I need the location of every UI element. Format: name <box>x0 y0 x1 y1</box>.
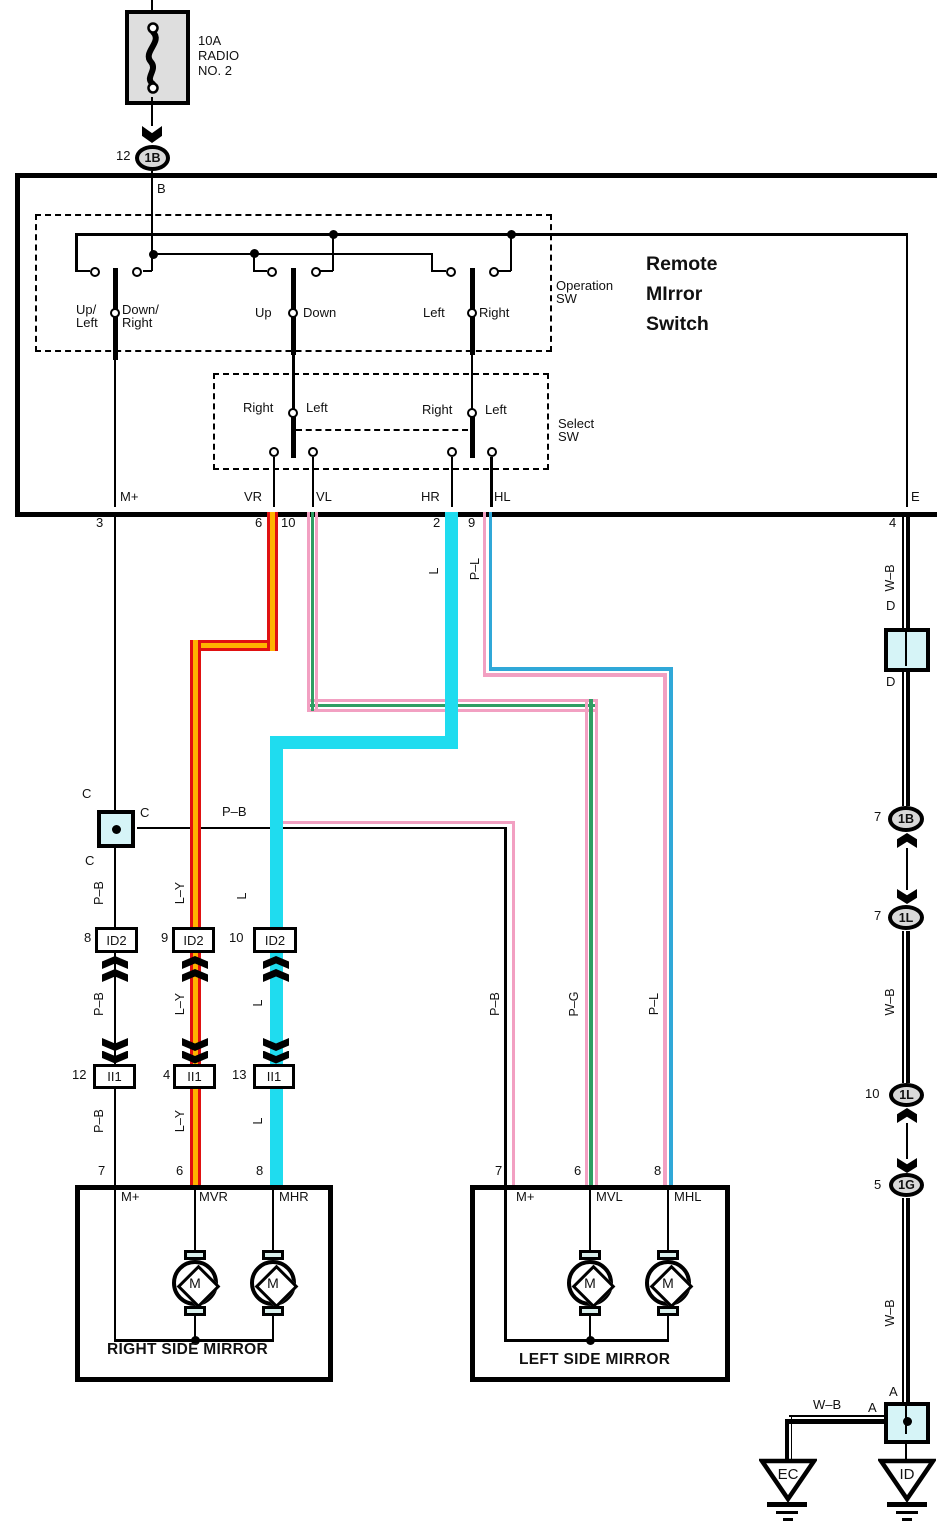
mirror-motor: M <box>172 1260 218 1306</box>
pin-hr: HR <box>421 490 440 504</box>
wire-pl-v1 <box>483 512 487 677</box>
wire-label-pb-branch: P–B <box>222 805 247 819</box>
id2-pin: 10 <box>229 931 243 945</box>
contact <box>489 267 499 277</box>
oval-pin: 10 <box>865 1087 879 1101</box>
fuse-name-2: NO. 2 <box>198 64 232 78</box>
connector-oval-1L: 1L <box>888 905 924 930</box>
pivot <box>288 308 298 318</box>
chain-wire <box>906 848 909 890</box>
fuse-box <box>125 10 190 105</box>
wire-label-l: L <box>251 1118 265 1125</box>
rm-pin-m: M+ <box>121 1190 139 1204</box>
wire-label-l: L <box>251 1000 265 1007</box>
motor-brush <box>579 1250 601 1260</box>
motor-label: M <box>254 1264 292 1302</box>
wire-label-pl-left: P–L <box>647 993 661 1015</box>
m-plus-wire-internal <box>114 360 117 507</box>
connector-ii1: II1 <box>93 1064 136 1089</box>
ground-hatch <box>896 1511 918 1514</box>
op-sw3-right-label: Right <box>479 306 509 320</box>
junction-dot <box>586 1336 595 1345</box>
pin-e-number: 4 <box>889 516 896 530</box>
pivot <box>467 308 477 318</box>
pin-vr: VR <box>244 490 262 504</box>
lm-mhl-stem <box>667 1185 670 1251</box>
op-sw3-left-label: Left <box>423 306 445 320</box>
wire-l-v1 <box>445 512 458 749</box>
wire-pg-v2 <box>585 699 588 1187</box>
id2-pin: 9 <box>161 931 168 945</box>
connector-c-label: C <box>82 787 91 801</box>
motor-brush <box>184 1306 206 1316</box>
rm-mvr-stem <box>194 1185 197 1251</box>
motor-label: M <box>571 1264 609 1302</box>
ec-ground-label: EC <box>778 1466 799 1483</box>
lm-pin-mvl: MVL <box>596 1190 623 1204</box>
wire-label-l: L <box>235 893 249 900</box>
select-sw2-right-label: Left <box>485 403 507 417</box>
contact <box>487 447 497 457</box>
select-sw2-lever[interactable] <box>470 413 475 458</box>
rm-mhr-stem <box>272 1185 275 1251</box>
op-sw1-right-label-2: Right <box>122 316 152 330</box>
fuse-out-wire <box>151 97 154 126</box>
arrow-up-icon <box>897 833 917 848</box>
contact <box>269 447 279 457</box>
pin-vr-number: 6 <box>255 516 262 530</box>
operation-sw-label-2: SW <box>556 292 577 306</box>
wire-pg-v1 <box>311 512 315 711</box>
pin-hr-number: 2 <box>433 516 440 530</box>
wire-label-pb: P–B <box>92 1109 106 1133</box>
select-sw-label-2: SW <box>558 430 579 444</box>
wb-thick <box>906 512 911 628</box>
arrow-down-icon <box>897 1158 917 1173</box>
wire-label-ly: L–Y <box>173 882 187 904</box>
rm-pin-n2: 6 <box>176 1164 183 1178</box>
mirror-motor: M <box>567 1260 613 1306</box>
motor-brush <box>262 1250 284 1260</box>
wire-pg-v2 <box>595 699 598 1187</box>
wb-thin <box>902 512 904 628</box>
contact <box>308 447 318 457</box>
rm-mhr-lower <box>272 1313 275 1341</box>
wire-pb-pink-h <box>282 821 515 824</box>
ground-hatch <box>887 1502 927 1507</box>
oval-pin: 7 <box>874 909 881 923</box>
connector-c-label: C <box>140 806 149 820</box>
pin-vl: VL <box>316 490 332 504</box>
select-link-dashed <box>296 429 468 431</box>
mirror-motor: M <box>250 1260 296 1306</box>
connector-d-divider <box>905 630 908 666</box>
op-sw1-left-label-2: Left <box>76 316 98 330</box>
pivot <box>467 408 477 418</box>
fuse-connector-pin: 12 <box>116 149 130 163</box>
id2-pin: 8 <box>84 931 91 945</box>
contact <box>447 447 457 457</box>
connector-a-label: A <box>889 1385 898 1399</box>
connector-ii1: II1 <box>253 1064 295 1089</box>
wire-label-pg-left: P–G <box>567 991 581 1016</box>
op-sw2-right-label: Down <box>303 306 336 320</box>
switch-title-1: Remote <box>646 253 718 276</box>
wb-thick <box>906 931 911 1083</box>
wire-label-pb-left: P–B <box>488 992 502 1016</box>
wire-pl-v2 <box>663 673 667 1188</box>
wb-thin <box>902 931 904 1083</box>
motor-label: M <box>649 1264 687 1302</box>
connector-oval-1L: 1L <box>889 1083 924 1107</box>
connector-oval-1B: 1B <box>888 806 924 832</box>
ground-hatch <box>767 1502 807 1507</box>
lm-pin-n1: 7 <box>495 1164 502 1178</box>
connector-id2: ID2 <box>253 927 297 953</box>
wire-label-wb-h: W–B <box>813 1398 841 1412</box>
ground-hatch <box>902 1518 912 1521</box>
lm-pin-n2: 6 <box>574 1164 581 1178</box>
e-feed-wire <box>906 233 909 507</box>
rm-pin-n1: 7 <box>98 1164 105 1178</box>
wb-thick <box>906 672 911 806</box>
junction-dot <box>903 1417 912 1426</box>
select-sw1-lever[interactable] <box>291 413 296 458</box>
wiring-diagram: 10A RADIO NO. 2 12 1B B Remote MIrror Sw… <box>0 0 937 1536</box>
wire-pl-v1 <box>489 512 493 671</box>
fuse-rating: 10A <box>198 34 221 48</box>
wire-label-wb: W–B <box>883 564 897 591</box>
junction-dot <box>112 825 121 834</box>
wb-thick <box>906 1198 911 1402</box>
ii1-pin: 13 <box>232 1068 246 1082</box>
lm-mhl-lower <box>667 1313 670 1341</box>
wb-thin <box>902 672 904 806</box>
wire-label-wb: W–B <box>883 988 897 1015</box>
pin-m-number: 3 <box>96 516 103 530</box>
lm-pin-m: M+ <box>516 1190 534 1204</box>
pivot <box>110 308 120 318</box>
ii1-pin: 4 <box>163 1068 170 1082</box>
connector-oval-1B-top: 1B <box>135 145 170 171</box>
rm-pin-mhr: MHR <box>279 1190 309 1204</box>
connector-oval-1G: 1G <box>889 1173 924 1197</box>
ground-stem <box>905 1444 908 1459</box>
fuse-name-1: RADIO <box>198 49 239 63</box>
arrow-down-icon <box>142 126 162 143</box>
chain-wire <box>906 1123 909 1159</box>
lm-pin-n3: 8 <box>654 1164 661 1178</box>
connector-ii1: II1 <box>173 1064 216 1089</box>
connector-id2: ID2 <box>95 927 138 953</box>
contact <box>90 267 100 277</box>
hl-internal-wire <box>490 457 493 507</box>
wire-pl-v2 <box>669 667 673 1188</box>
rm-pin-n3: 8 <box>256 1164 263 1178</box>
wire-label-l-top: L <box>427 568 441 575</box>
wire-ly-v1 <box>275 512 278 651</box>
pin-m-plus: M+ <box>120 490 138 504</box>
wire-label-pb: P–B <box>92 992 106 1016</box>
wire-pb-pink-v <box>512 821 515 1187</box>
oval-pin: 7 <box>874 810 881 824</box>
motor-brush <box>657 1306 679 1316</box>
switch-title-3: Switch <box>646 313 709 336</box>
wire-label-wb: W–B <box>883 1299 897 1326</box>
wb-branch-thick <box>786 1419 884 1424</box>
fuse-symbol <box>129 14 186 101</box>
arrow-up-icon <box>897 1108 917 1123</box>
mirror-motor: M <box>645 1260 691 1306</box>
connector-d-label: D <box>886 599 895 613</box>
connector-c-label: C <box>85 854 94 868</box>
wire-pg-v2 <box>589 699 593 1187</box>
motor-brush <box>184 1250 206 1260</box>
wb-thin <box>902 1198 904 1402</box>
contact <box>446 267 456 277</box>
pin-hl: HL <box>494 490 511 504</box>
wire-pl-h <box>489 667 674 671</box>
vr-internal-wire <box>273 457 276 507</box>
wire-pl-h <box>483 673 668 677</box>
pin-vl-number: 10 <box>281 516 295 530</box>
wire-label-ly: L–Y <box>173 993 187 1015</box>
ground-hatch <box>783 1518 793 1521</box>
wire-label-pl-top: P–L <box>468 558 482 580</box>
connector-id2: ID2 <box>172 927 215 953</box>
contact <box>132 267 142 277</box>
ground-hatch <box>776 1511 798 1514</box>
select-sw1-right-label: Left <box>306 401 328 415</box>
connector-d-label: D <box>886 675 895 689</box>
contact <box>267 267 277 277</box>
switch-title-2: MIrror <box>646 283 702 306</box>
pin-hl-number: 9 <box>468 516 475 530</box>
wire-ly-h <box>190 648 278 651</box>
left-mirror-title: LEFT SIDE MIRROR <box>519 1351 670 1369</box>
wire-l-h <box>270 736 458 749</box>
select-sw2-left-label: Right <box>422 403 452 417</box>
rm-pin-mvr: MVR <box>199 1190 228 1204</box>
wire-pg-v1 <box>315 512 318 711</box>
vl-internal-wire <box>312 457 315 507</box>
select-sw-box <box>213 373 549 470</box>
connector-d <box>884 628 930 672</box>
lm-mvl-stem <box>589 1185 592 1251</box>
ii1-pin: 12 <box>72 1068 86 1082</box>
connector-a-label: A <box>868 1401 877 1415</box>
wire-ly-v2 <box>198 640 201 1187</box>
select-sw1-left-label: Right <box>243 401 273 415</box>
wb-branch-thin <box>789 1415 884 1417</box>
wire-pg-v1 <box>307 512 310 711</box>
wire-label-ly: L–Y <box>173 1110 187 1132</box>
wb-branch-thin-v <box>791 1415 793 1460</box>
id-ground-label: ID <box>900 1466 915 1483</box>
op-sw2-left-label: Up <box>255 306 272 320</box>
lm-pin-mhl: MHL <box>674 1190 701 1204</box>
right-mirror-title: RIGHT SIDE MIRROR <box>107 1341 268 1359</box>
id-ground-icon: ID <box>878 1458 936 1502</box>
motor-brush <box>579 1306 601 1316</box>
wb-branch-thick-v <box>785 1419 790 1460</box>
wire-label-pb: P–B <box>92 881 106 905</box>
pivot <box>288 408 298 418</box>
oval-pin: 5 <box>874 1178 881 1192</box>
contact <box>311 267 321 277</box>
motor-brush <box>262 1306 284 1316</box>
arrow-down-icon <box>897 889 917 904</box>
ec-ground-icon: EC <box>759 1458 817 1502</box>
motor-label: M <box>176 1264 214 1302</box>
pin-e: E <box>911 490 920 504</box>
hr-internal-wire <box>451 457 454 507</box>
motor-brush <box>657 1250 679 1260</box>
